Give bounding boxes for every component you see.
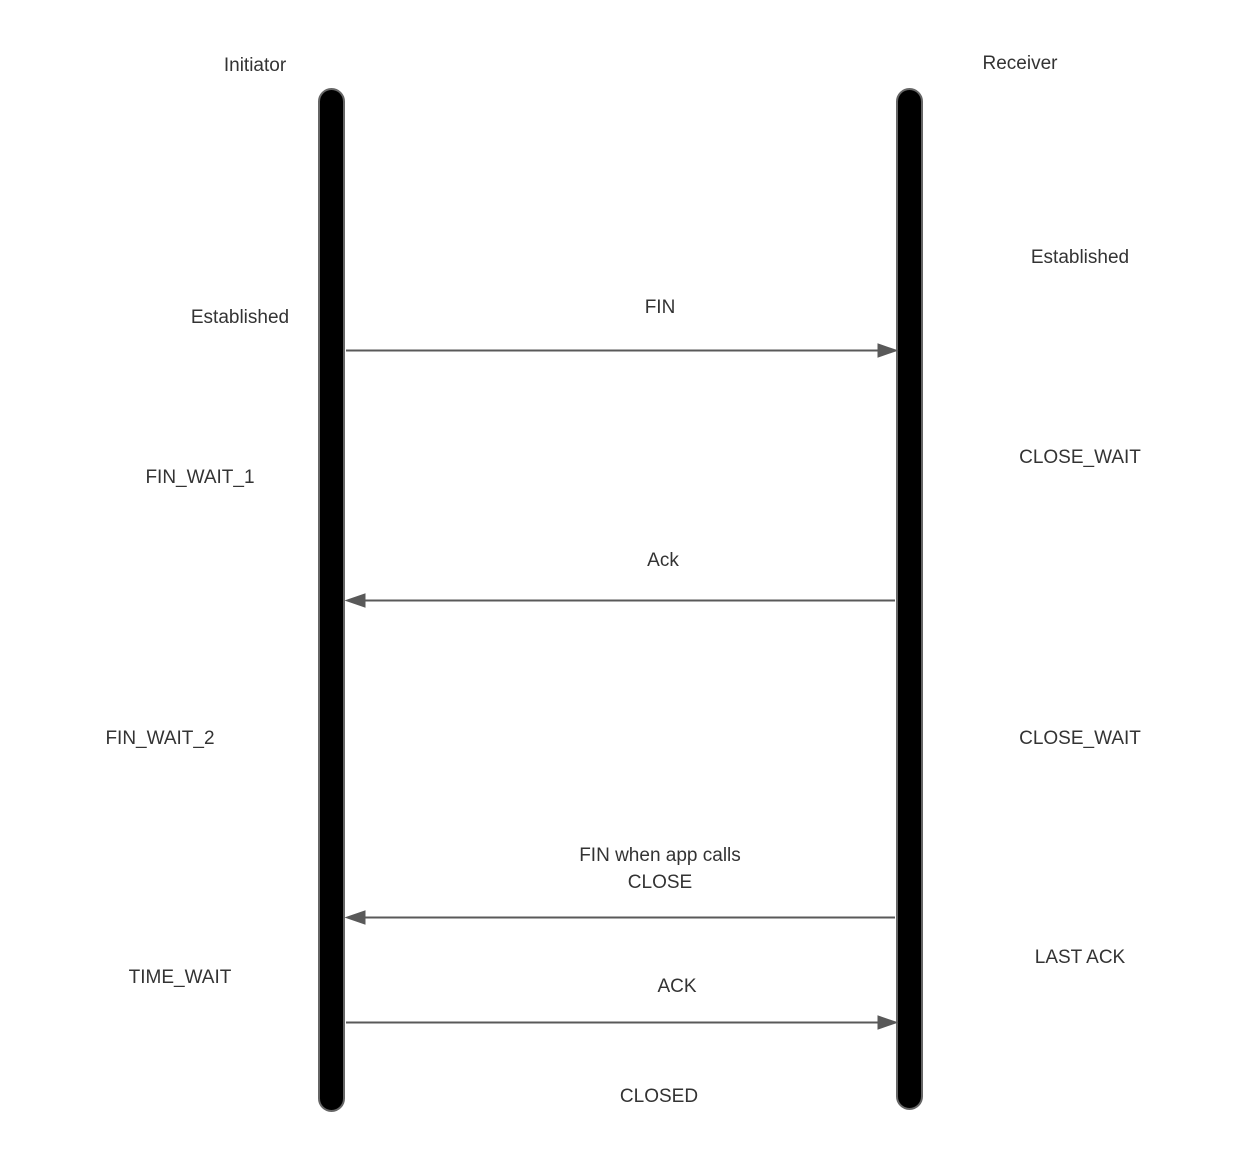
message-label-final-ack: ACK <box>547 974 807 1000</box>
final-ack-arrow <box>346 1016 897 1029</box>
ack-arrow <box>346 594 895 607</box>
receiver-state-close-wait-1: CLOSE_WAIT <box>980 445 1180 471</box>
receiver-state-established: Established <box>980 245 1180 271</box>
message-label-ack: Ack <box>533 548 793 574</box>
receiver-state-close-wait-2: CLOSE_WAIT <box>980 726 1180 752</box>
initiator-state-time-wait: TIME_WAIT <box>80 965 280 991</box>
receiver-state-last-ack: LAST ACK <box>980 945 1180 971</box>
fin-arrow <box>346 344 897 357</box>
sequence-diagram: Initiator Receiver Established FIN_WAIT_… <box>0 0 1240 1171</box>
final-state-closed: CLOSED <box>559 1084 759 1110</box>
initiator-state-established: Established <box>140 305 340 331</box>
message-label-fin: FIN <box>530 295 790 321</box>
message-label-fin-close: FIN when app calls CLOSE <box>565 842 755 896</box>
initiator-state-fin-wait-1: FIN_WAIT_1 <box>100 465 300 491</box>
fin-close-arrow <box>346 911 895 924</box>
initiator-state-fin-wait-2: FIN_WAIT_2 <box>60 726 260 752</box>
